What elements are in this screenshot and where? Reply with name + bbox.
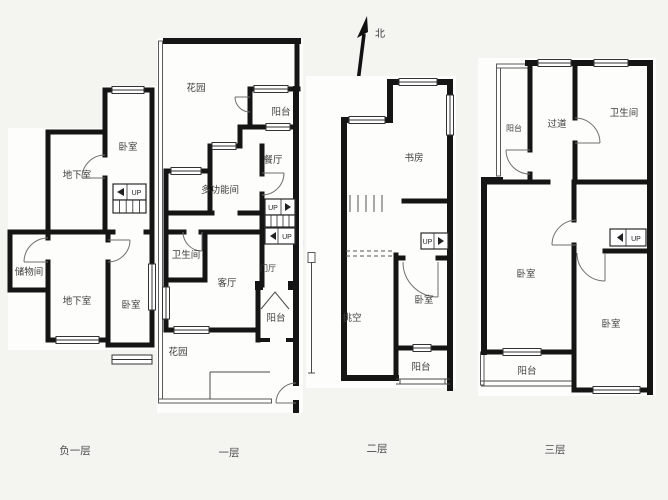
- room-label-bedroom: 卧室: [118, 141, 137, 153]
- room-label-bedroom: 卧室: [121, 299, 140, 311]
- floor-plan-image: 北: [0, 0, 668, 500]
- room-label-balcony: 阳台: [271, 106, 290, 118]
- stairs-up-label: UP: [423, 239, 433, 246]
- room-label-dining: 餐厅: [263, 154, 283, 166]
- stairs-up-label: UP: [268, 205, 278, 212]
- floor-caption: 三层: [545, 444, 566, 456]
- floor-plan-page: 北: [0, 0, 668, 500]
- room-label-garden: 花园: [168, 346, 187, 358]
- room-label-living: 客厅: [217, 277, 237, 289]
- floor-underlay: [8, 128, 158, 350]
- room-label-basement: 地下室: [63, 295, 92, 307]
- stairs-up: UP: [113, 184, 146, 213]
- room-label-void: 挑空: [342, 312, 361, 324]
- stairs-up: UP: [265, 228, 295, 244]
- room-label-balcony: 阳台: [411, 361, 430, 373]
- floor-caption: 二层: [367, 443, 388, 455]
- stairs-up-label: UP: [631, 236, 641, 243]
- floor-caption: 负一层: [59, 444, 91, 457]
- room-label-multifunction: 多功能间: [201, 184, 239, 196]
- floorplan-level1: UP UP 花园 阳台 餐厅 多功能间 卫生间 客厅 门厅 阳台 花园 一层: [157, 38, 303, 459]
- stairs-up: UP: [265, 199, 295, 227]
- north-label: 北: [375, 28, 385, 40]
- room-label-balcony: 阳台: [506, 123, 522, 133]
- stairs-up: UP: [421, 233, 448, 249]
- stairs-up-label: UP: [132, 190, 142, 197]
- room-label-balcony: 阳台: [517, 365, 536, 377]
- room-label-bedroom: 卧室: [516, 268, 535, 280]
- stairs-up: UP: [610, 229, 646, 246]
- room-label-bathroom: 卫生间: [172, 249, 201, 261]
- room-label-storage: 储物间: [15, 266, 44, 278]
- room-label-bathroom: 卫生间: [610, 107, 639, 119]
- room-label-basement: 地下室: [63, 169, 92, 181]
- room-label-foyer: 门厅: [260, 263, 276, 273]
- floor-caption: 一层: [219, 447, 240, 459]
- room-label-corridor: 过道: [547, 118, 567, 130]
- room-label-garden: 花园: [186, 82, 205, 94]
- room-label-bedroom: 卧室: [601, 318, 620, 330]
- room-label-balcony: 阳台: [266, 312, 285, 324]
- room-label-bedroom: 卧室: [414, 294, 433, 306]
- room-label-study: 书房: [404, 152, 423, 164]
- stairs-up-label: UP: [282, 234, 292, 241]
